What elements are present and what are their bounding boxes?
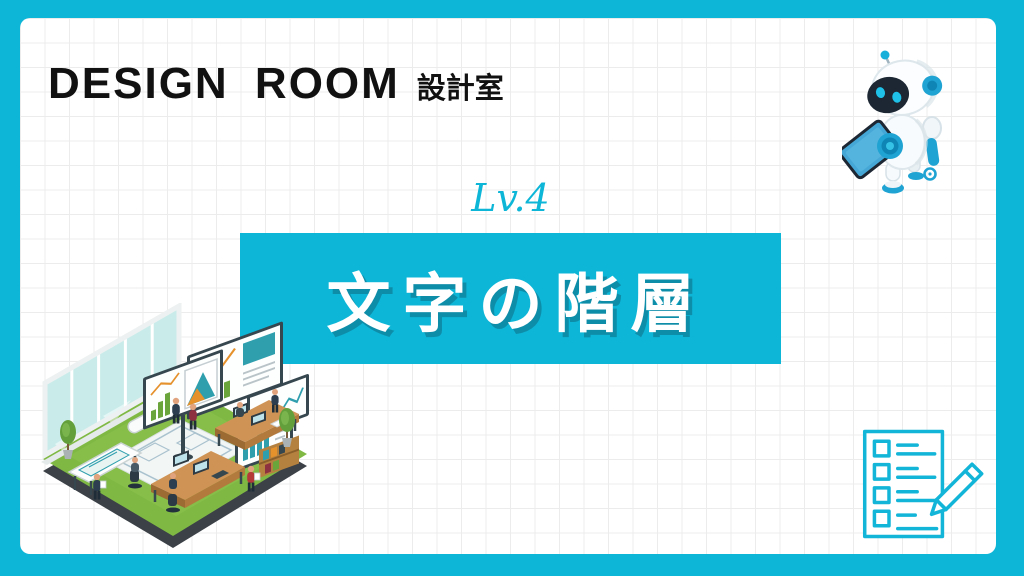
brand-header: DESIGN ROOM 設計室 — [48, 58, 504, 111]
slide-title: 文字の階層 — [315, 253, 707, 345]
robot-with-tablet-icon — [842, 48, 962, 198]
brand-title: DESIGN ROOM — [48, 58, 400, 111]
slide-frame: DESIGN ROOM 設計室 — [0, 0, 1024, 576]
slide-paper: DESIGN ROOM 設計室 — [20, 18, 996, 554]
isometric-design-office-illustration — [35, 303, 315, 555]
checklist-with-pencil-icon — [855, 425, 991, 543]
title-banner: 文字の階層 — [240, 233, 781, 364]
brand-subtitle: 設計室 — [417, 71, 504, 106]
level-label: Lv.4 — [240, 176, 781, 222]
